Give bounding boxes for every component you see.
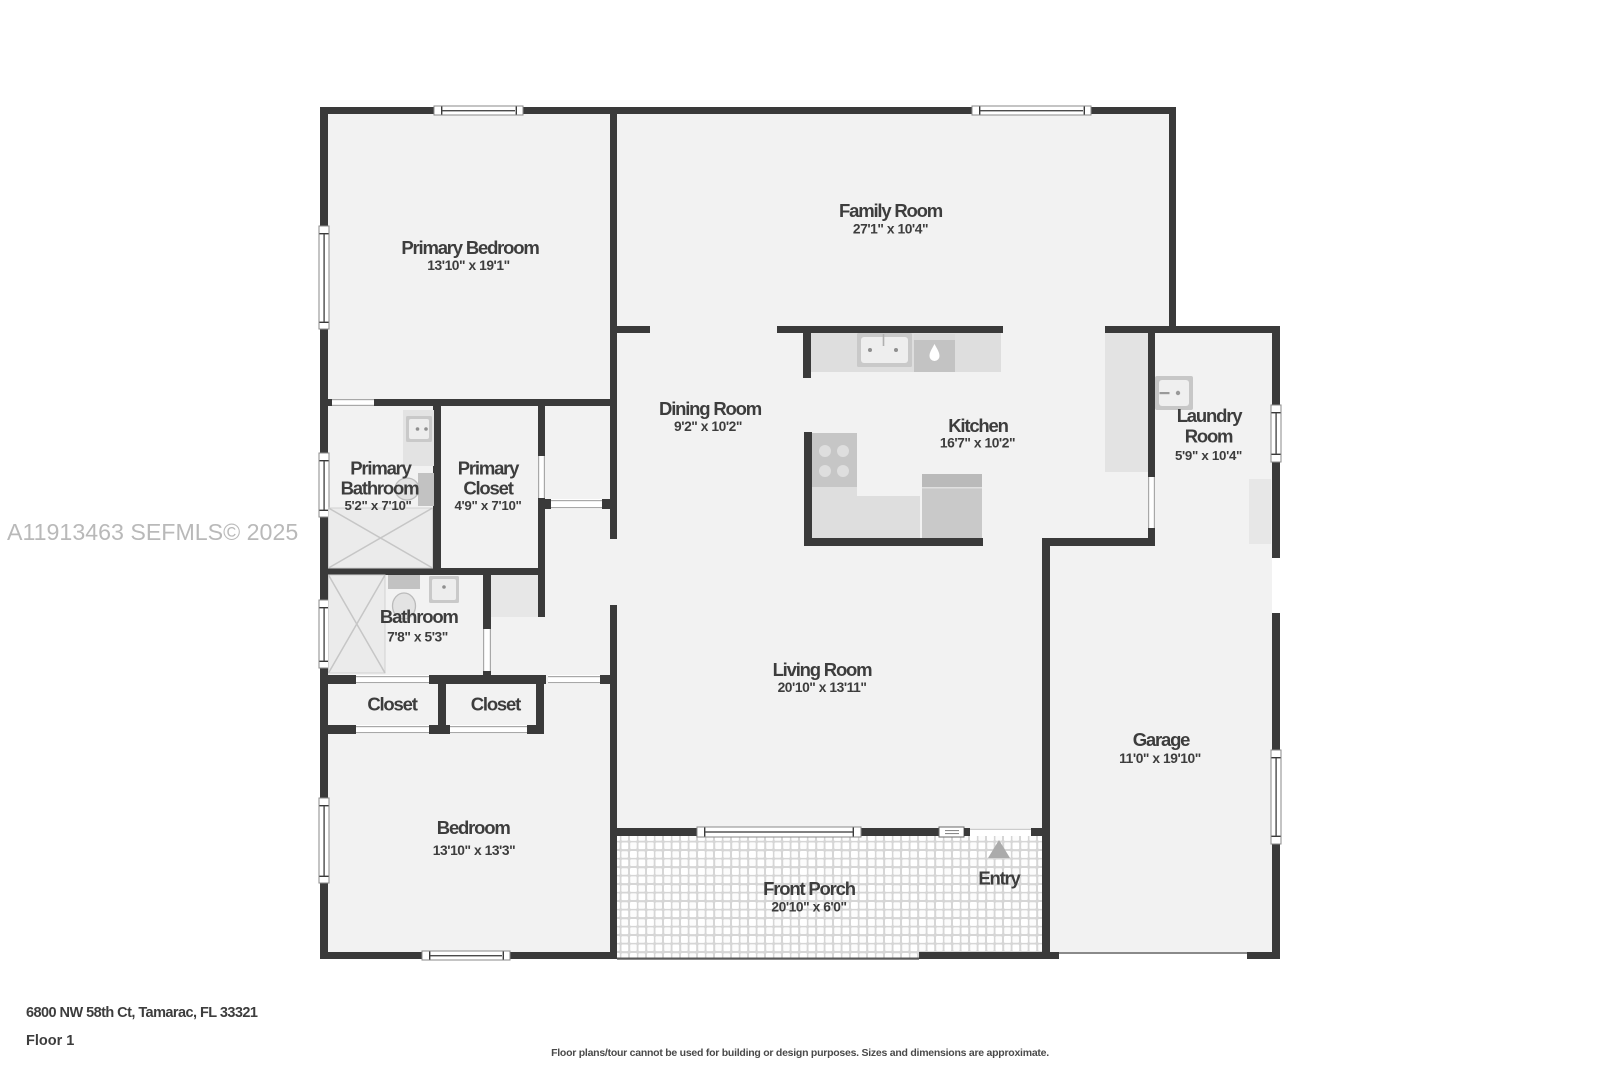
svg-text:Floor plans/tour cannot be use: Floor plans/tour cannot be used for buil… xyxy=(551,1047,1049,1059)
svg-text:A11913463 SEFMLS© 2025: A11913463 SEFMLS© 2025 xyxy=(7,519,298,545)
svg-text:Bathroom: Bathroom xyxy=(380,606,459,627)
svg-text:Front Porch: Front Porch xyxy=(763,878,856,899)
svg-text:4'9" x 7'10": 4'9" x 7'10" xyxy=(454,498,521,513)
svg-text:Primary Bedroom: Primary Bedroom xyxy=(401,237,539,258)
svg-text:9'2" x 10'2": 9'2" x 10'2" xyxy=(674,419,742,434)
svg-text:Floor 1: Floor 1 xyxy=(26,1033,74,1049)
svg-text:Living Room: Living Room xyxy=(773,659,873,680)
svg-text:Closet: Closet xyxy=(471,694,521,715)
svg-text:Closet: Closet xyxy=(463,477,513,498)
svg-text:Room: Room xyxy=(1185,426,1233,447)
svg-text:11'0" x 19'10": 11'0" x 19'10" xyxy=(1119,751,1201,766)
svg-text:Family Room: Family Room xyxy=(839,200,943,221)
svg-text:5'2" x 7'10": 5'2" x 7'10" xyxy=(344,498,411,513)
svg-text:Garage: Garage xyxy=(1133,729,1190,750)
svg-text:27'1" x 10'4": 27'1" x 10'4" xyxy=(853,222,928,237)
svg-text:Closet: Closet xyxy=(367,694,417,715)
svg-text:7'8" x 5'3": 7'8" x 5'3" xyxy=(387,630,448,645)
svg-text:Bedroom: Bedroom xyxy=(437,817,511,838)
svg-text:13'10" x 19'1": 13'10" x 19'1" xyxy=(427,258,509,273)
svg-text:Bathroom: Bathroom xyxy=(341,477,420,498)
svg-text:Dining Room: Dining Room xyxy=(659,398,762,419)
svg-text:6800 NW 58th Ct, Tamarac, FL 3: 6800 NW 58th Ct, Tamarac, FL 33321 xyxy=(26,1005,258,1021)
svg-text:16'7" x 10'2": 16'7" x 10'2" xyxy=(940,436,1015,451)
svg-text:Entry: Entry xyxy=(978,868,1021,889)
svg-text:Kitchen: Kitchen xyxy=(948,415,1008,436)
svg-text:Primary: Primary xyxy=(350,457,412,478)
svg-text:5'9" x 10'4": 5'9" x 10'4" xyxy=(1175,448,1242,463)
svg-text:Primary: Primary xyxy=(458,457,520,478)
svg-text:13'10" x 13'3": 13'10" x 13'3" xyxy=(433,843,515,858)
svg-text:20'10" x 6'0": 20'10" x 6'0" xyxy=(771,900,846,915)
svg-text:Laundry: Laundry xyxy=(1177,405,1243,426)
svg-text:20'10" x 13'11": 20'10" x 13'11" xyxy=(778,680,867,695)
